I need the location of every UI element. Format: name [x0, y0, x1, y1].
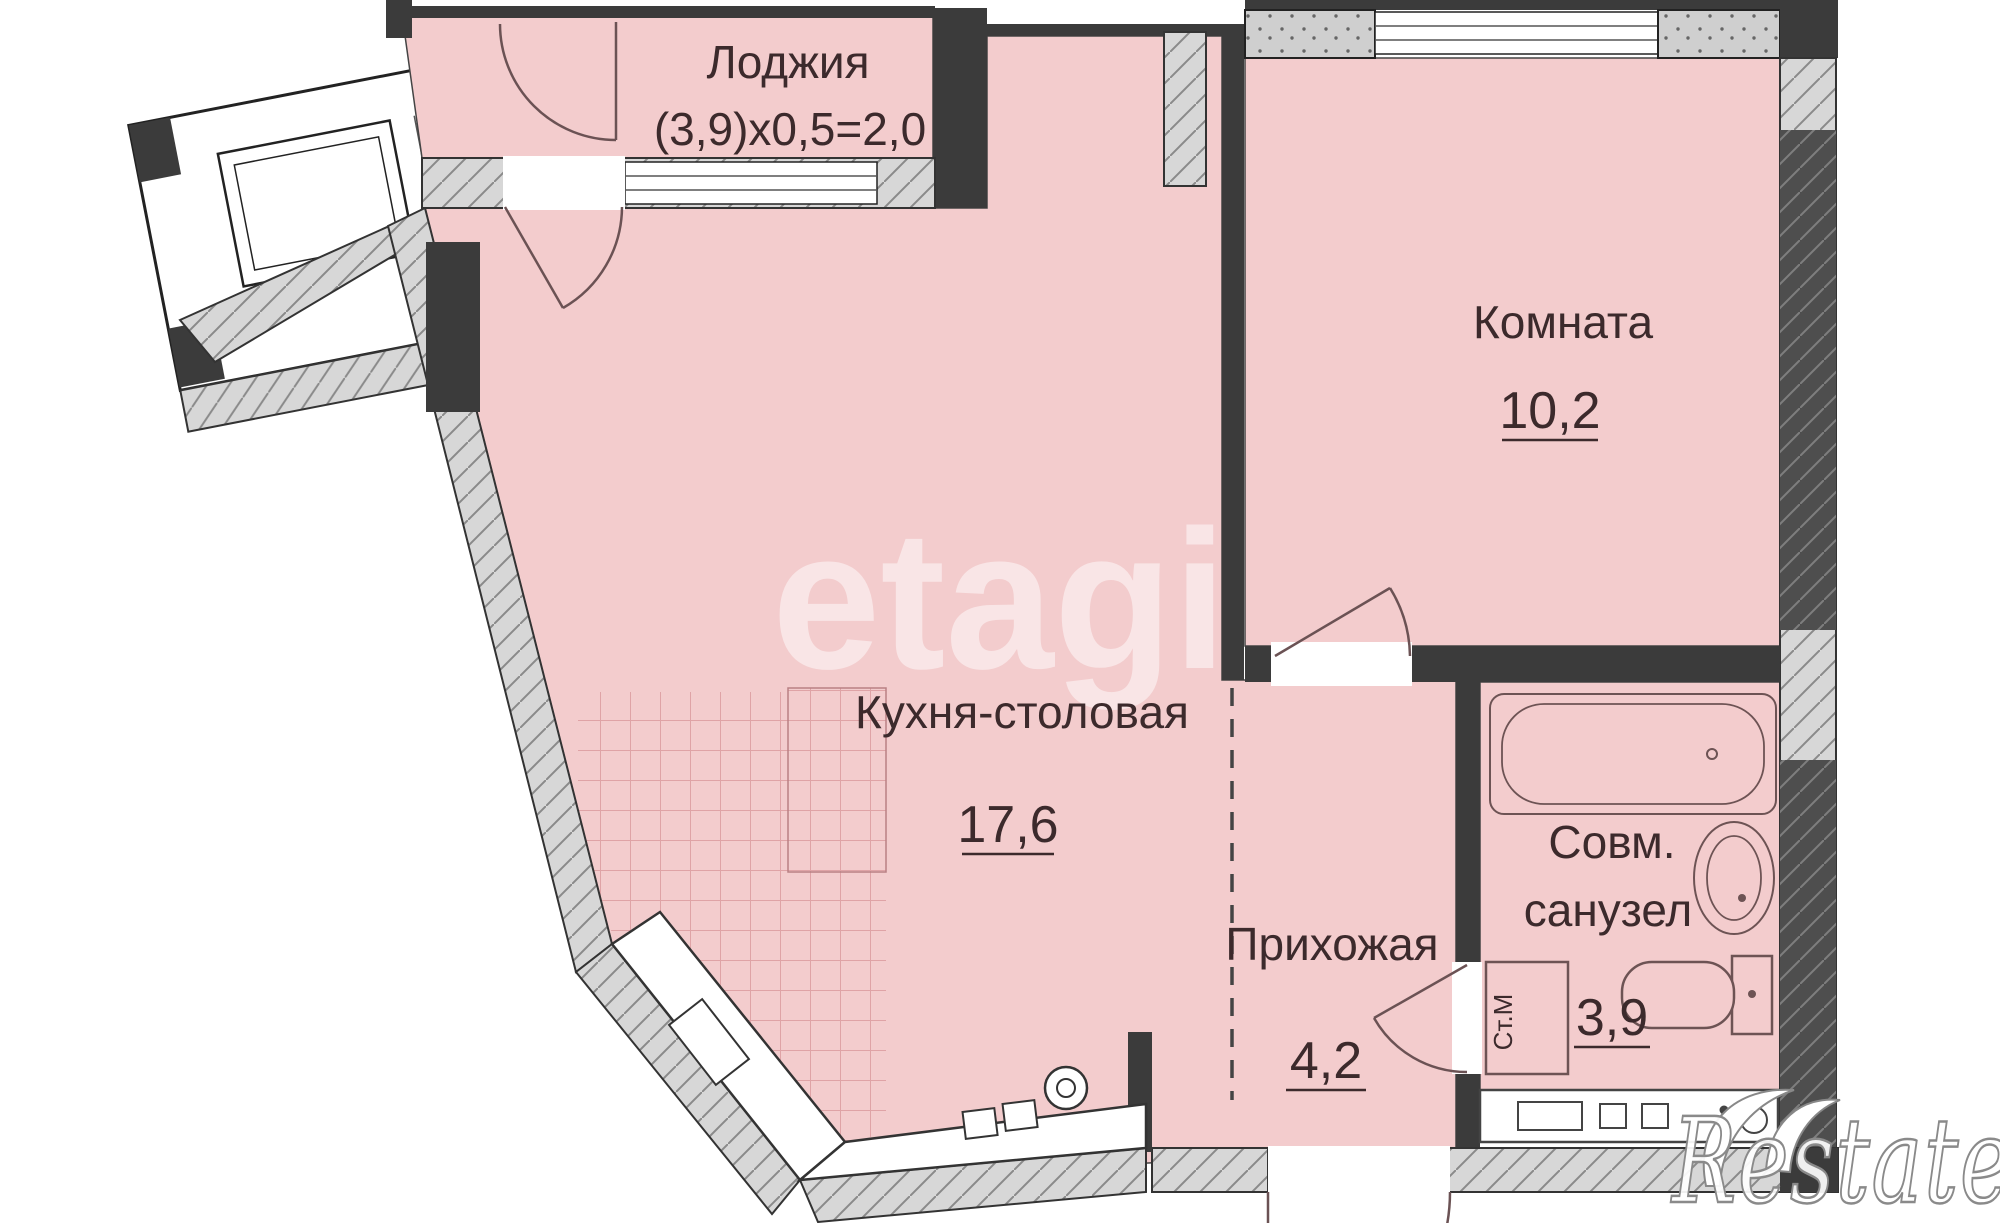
bathroom-door-opening: [1452, 962, 1482, 1074]
hallway-area: 4,2: [1290, 1032, 1362, 1090]
loggia-label: Лоджия: [707, 36, 870, 88]
corner-wall: [1780, 0, 1838, 58]
bathroom-left-wall: [1456, 682, 1480, 1148]
bathroom-label-line1: Совм.: [1548, 816, 1675, 868]
washing-machine-label: Ст.М: [1488, 994, 1518, 1051]
bathroom-label-line2: санузел: [1524, 884, 1692, 936]
bathroom-area: 3,9: [1576, 989, 1648, 1047]
floor-plan-drawing: etagi: [0, 0, 2000, 1223]
toilet-button: [1748, 990, 1756, 998]
watermark-restate: Restate: [1671, 1092, 2000, 1223]
room-area: 10,2: [1499, 382, 1600, 440]
wall-pier: [1658, 10, 1780, 58]
balcony-door-opening: [503, 156, 625, 210]
room-window: [1375, 12, 1658, 54]
kitchen-window: [625, 162, 877, 204]
watermark-etagi: etagi: [772, 489, 1227, 710]
bathroom-sink: [1694, 822, 1774, 934]
room-door-opening: [1271, 642, 1412, 686]
vent-shaft: [1164, 32, 1206, 186]
floor-plan-page: etagi: [0, 0, 2000, 1223]
hallway-label: Прихожая: [1225, 918, 1438, 970]
bottom-outer-wall: [1152, 1148, 1268, 1192]
bathroom-sink-drain: [1738, 894, 1746, 902]
right-outer-wall-dark: [1780, 130, 1836, 630]
wall-pier: [1245, 10, 1375, 58]
loggia-area: (3,9)х0,5=2,0: [654, 103, 926, 155]
bathtub: [1490, 694, 1776, 814]
stove-burner: [963, 1108, 998, 1139]
kitchen-label: Кухня-столовая: [855, 686, 1189, 738]
wall-pier: [933, 8, 987, 208]
stove-burner: [1003, 1100, 1038, 1131]
room-floor: [1245, 58, 1780, 646]
entrance-door-opening: [1268, 1146, 1450, 1194]
wall-pier: [386, 0, 412, 38]
kitchen-area: 17,6: [957, 796, 1058, 854]
room-top-wall: [1245, 0, 1838, 10]
room-label: Комната: [1473, 296, 1654, 348]
kitchen-sink: [1045, 1067, 1087, 1109]
kitchen-room-wall: [1222, 24, 1244, 680]
loggia-top-wall: [392, 6, 935, 18]
watermark-restate-logo: Restate: [1671, 1090, 2000, 1223]
wall-pier: [426, 242, 480, 412]
